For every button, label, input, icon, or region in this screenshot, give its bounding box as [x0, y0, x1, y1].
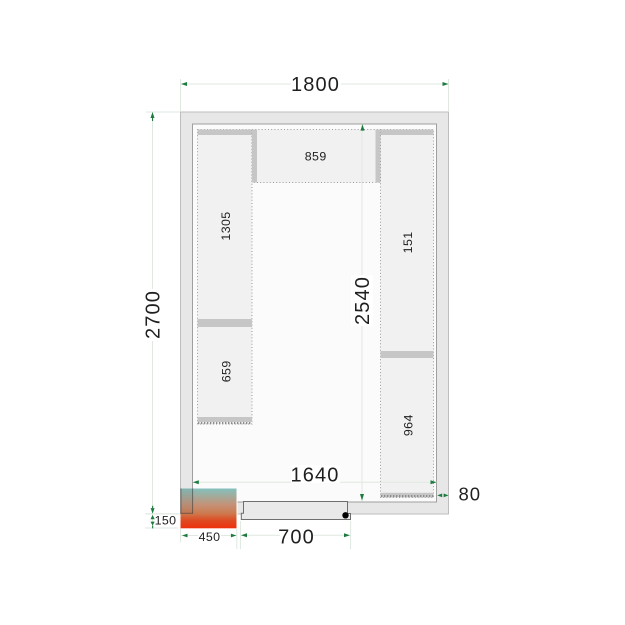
svg-text:859: 859: [305, 149, 327, 163]
svg-text:1640: 1640: [291, 465, 340, 487]
svg-text:964: 964: [402, 414, 416, 436]
svg-text:659: 659: [220, 360, 234, 382]
svg-text:1305: 1305: [219, 211, 233, 240]
svg-text:80: 80: [459, 484, 482, 505]
svg-text:2540: 2540: [352, 276, 374, 325]
svg-text:2700: 2700: [143, 290, 165, 339]
svg-text:1800: 1800: [291, 74, 340, 96]
svg-text:151: 151: [401, 231, 415, 253]
svg-text:150: 150: [155, 514, 177, 528]
svg-text:700: 700: [278, 526, 315, 548]
svg-text:450: 450: [199, 530, 221, 544]
